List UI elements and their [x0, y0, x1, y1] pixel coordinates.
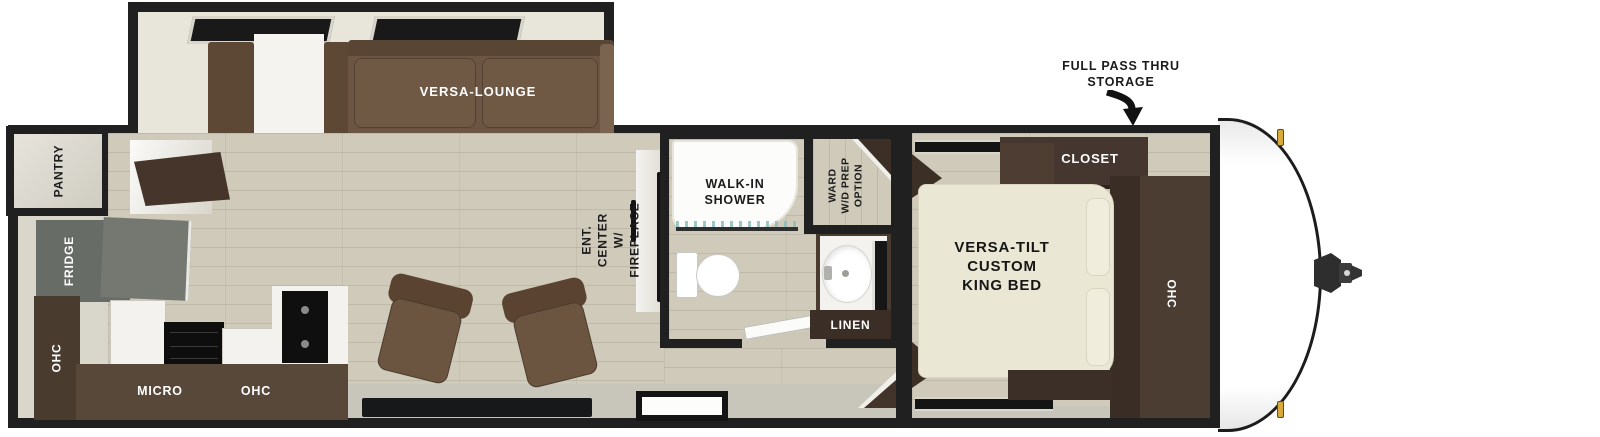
chair-seat: [376, 296, 464, 385]
pantry-label: PANTRY: [51, 145, 65, 198]
ent-center-label-wrap: ENT. CENTER W/ FIREPLACE: [576, 167, 646, 313]
drawer-knob-icon: [301, 306, 309, 314]
ward-label-wrap: WARD W/D PREP OPTION: [818, 144, 874, 226]
chair-seat: [512, 300, 600, 389]
upper-cabinet-door: [134, 152, 230, 206]
cooktop-grate: [170, 358, 218, 359]
down-arrow-icon: [1104, 90, 1150, 128]
bedroom-ohc-label: OHC: [1165, 279, 1179, 308]
drawer-cabinet: [272, 286, 348, 368]
storage-callout-label: FULL PASS THRU STORAGE: [1046, 58, 1196, 90]
kitchen-counter: [110, 300, 166, 366]
shower-door-track: [676, 227, 798, 231]
sofa-armrest: [600, 44, 614, 136]
hallway-floor: [664, 348, 898, 384]
pillow: [1086, 288, 1110, 366]
bedroom-wall: [896, 130, 912, 418]
closet-label: CLOSET: [1038, 151, 1142, 167]
fridge-door: [100, 217, 191, 301]
cooktop-grate: [170, 332, 218, 333]
ohc-cabinet-left: OHC: [34, 296, 80, 420]
hitch-icon: [1314, 250, 1366, 296]
drawers: [282, 291, 328, 363]
cooktop-grate: [170, 346, 218, 347]
step-well: [362, 398, 592, 417]
ward-label: WARD W/D PREP OPTION: [826, 157, 865, 213]
sink-drain-icon: [842, 270, 849, 277]
fridge-label: FRIDGE: [62, 236, 76, 286]
front-cap: [1218, 118, 1322, 432]
toilet-tank: [676, 252, 698, 298]
kitchen-lower-cabinet: MICRO OHC: [76, 364, 348, 420]
versa-lounge-label: VERSA-LOUNGE: [388, 84, 568, 100]
ent-center-label: ENT. CENTER W/ FIREPLACE: [579, 202, 643, 277]
linen-label: LINEN: [831, 318, 871, 332]
entry-door: [636, 391, 728, 421]
ohc-bottom-label: OHC: [211, 383, 301, 399]
ohc-left-label: OHC: [50, 343, 64, 372]
pillow: [1086, 198, 1110, 276]
cooktop: [164, 322, 224, 366]
mirror: [872, 241, 887, 315]
toilet-bowl: [696, 254, 740, 297]
marker-light-icon: [1277, 401, 1284, 418]
bed-foot-cabinet: [1008, 370, 1112, 400]
ohc-edge: [1110, 176, 1140, 418]
bedroom-ohc-label-wrap: OHC: [1146, 268, 1198, 320]
marker-light-icon: [1277, 129, 1284, 146]
drawer-knob-icon: [301, 340, 309, 348]
shower-label: WALK-IN SHOWER: [674, 176, 796, 208]
micro-label: MICRO: [110, 383, 210, 399]
faucet-icon: [824, 266, 832, 280]
sofa-back: [348, 40, 614, 56]
linen-cabinet: LINEN: [810, 310, 891, 339]
king-bed-label: VERSA-TILT CUSTOM KING BED: [920, 238, 1084, 295]
pantry-label-wrap: PANTRY: [14, 134, 102, 208]
floorplan-canvas: FULL PASS THRU STORAGE PANTRY VERSA-LOUN…: [0, 0, 1600, 437]
